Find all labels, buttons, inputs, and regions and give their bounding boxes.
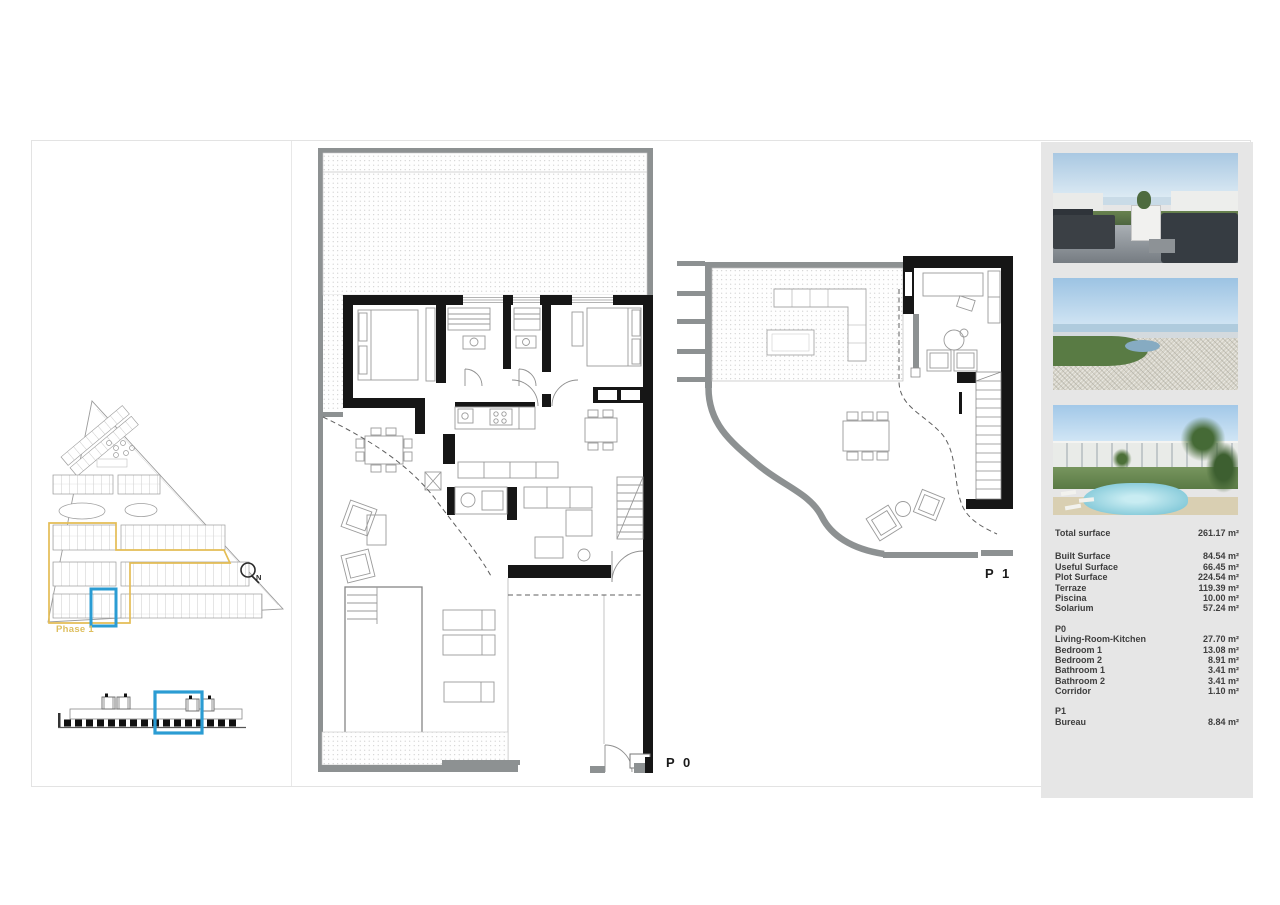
- bureau-furniture: [923, 271, 1000, 371]
- table-row: Bedroom 1 13.08 m²: [1055, 645, 1239, 655]
- bed-1: [358, 310, 418, 380]
- table-row: Bureau 8.84 m²: [1055, 717, 1239, 727]
- terrace-dining: [356, 428, 412, 472]
- pool: [345, 587, 422, 740]
- bathroom-2: [514, 308, 540, 348]
- bed-2: [572, 308, 641, 366]
- photo-residential-pool-render: [1053, 405, 1238, 515]
- garden-area: [323, 153, 647, 295]
- phase-label: Phase 1: [56, 624, 94, 635]
- table-row: Terraze 119.39 m²: [1055, 583, 1239, 593]
- stairs: [976, 372, 1001, 499]
- windows: [463, 295, 613, 394]
- table-row-total: Total surface 261.17 m²: [1055, 528, 1239, 538]
- site-plan: [45, 393, 290, 643]
- photo-rooftop-terrace-render: [1053, 153, 1238, 263]
- info-panel: Total surface 261.17 m² Built Surface 84…: [1041, 142, 1253, 798]
- brochure-page: Phase 1 N: [0, 0, 1280, 905]
- floor-plan-p0: [314, 146, 664, 776]
- floor-label-p1: P 1: [985, 566, 1012, 581]
- table-section-p1: P1: [1055, 706, 1239, 716]
- terrace-furniture: [843, 412, 945, 541]
- building-elevation: [50, 690, 250, 775]
- interior-walls: [343, 295, 653, 757]
- sun-loungers: [443, 610, 495, 702]
- surface-table: Total surface 261.17 m² Built Surface 84…: [1055, 528, 1239, 727]
- column-divider: [291, 141, 292, 786]
- floor-plan-p1: [671, 256, 1016, 562]
- kitchen: [455, 407, 558, 514]
- compass-north-label: N: [256, 573, 261, 582]
- living-room: [524, 410, 617, 561]
- furniture: [341, 308, 643, 772]
- table-row: Living-Room-Kitchen 27.70 m²: [1055, 634, 1239, 644]
- stairs: [617, 477, 643, 539]
- table-row: Bathroom 2 3.41 m²: [1055, 676, 1239, 686]
- table-row: Piscina 10.00 m²: [1055, 593, 1239, 603]
- bathroom-1: [448, 308, 490, 349]
- table-row: Bathroom 1 3.41 m²: [1055, 665, 1239, 675]
- table-section-p0: P0: [1055, 624, 1239, 634]
- table-row: Plot Surface 224.54 m²: [1055, 572, 1239, 582]
- floor-label-p0: P 0: [666, 755, 693, 770]
- photo-aerial-coastline-view: [1053, 278, 1238, 390]
- table-row: Useful Surface 66.45 m²: [1055, 562, 1239, 572]
- shaft-marker: [425, 472, 441, 490]
- table-row: Bedroom 2 8.91 m²: [1055, 655, 1239, 665]
- table-row: Built Surface 84.54 m²: [1055, 551, 1239, 561]
- table-row: Solarium 57.24 m²: [1055, 603, 1239, 613]
- table-row: Corridor 1.10 m²: [1055, 686, 1239, 696]
- pergola-area: [712, 268, 903, 381]
